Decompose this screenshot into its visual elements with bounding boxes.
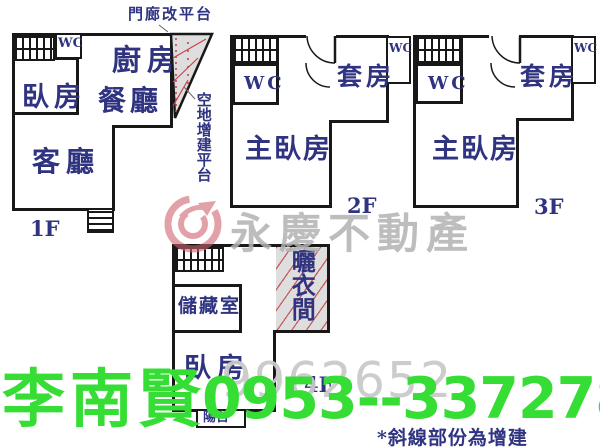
stairs-3f <box>415 37 463 63</box>
wall <box>329 120 389 123</box>
room-label-suite-3f: 套房 <box>520 64 578 90</box>
side-callout-line <box>184 87 195 99</box>
room-label-bedroom-1f: 臥房 <box>22 84 86 112</box>
porch-callout-line <box>159 25 168 32</box>
room-label-kitchen: 廚房 <box>112 45 182 75</box>
wall <box>112 125 173 128</box>
wall <box>519 35 574 38</box>
stairs-2f <box>232 37 279 63</box>
stairs-1f-down <box>87 208 114 233</box>
room-label-wc-1f: WC <box>58 37 83 51</box>
room-label-wc-right-3f: WC <box>574 42 597 55</box>
agent-phone: 0953--337278 <box>202 371 600 428</box>
room-label-suite-2f: 套房 <box>337 64 395 90</box>
room-label-wc-2f: WC <box>244 75 285 94</box>
door-swing-3f <box>491 36 520 87</box>
stairs-4f <box>174 247 224 272</box>
brand-watermark: 永慶不動產 <box>230 200 475 261</box>
floor-label-3f: 3F <box>534 194 564 219</box>
annotation-addition-side: 空地增建平台 <box>195 92 211 194</box>
annotation-porch: 門廊改平台 <box>128 7 213 23</box>
agent-contact: 李南賢 0953--337278 <box>2 368 600 431</box>
room-label-living: 客廳 <box>32 147 100 176</box>
room-label-dining: 餐廳 <box>98 86 162 115</box>
wall <box>336 35 389 38</box>
room-label-wc-3f: WC <box>428 75 469 94</box>
wall <box>112 125 115 211</box>
floor-label-1f: 1F <box>30 216 60 241</box>
stairs-1f <box>13 36 55 61</box>
brand-logo-icon <box>168 199 218 249</box>
room-label-master-2f: 主臥房 <box>245 136 332 164</box>
room-label-master-3f: 主臥房 <box>432 136 519 164</box>
wall <box>516 118 574 121</box>
floorplan-image: WC 臥房 廚房 餐廳 客廳 1F 門廊改平台 空地增建平台 WC WC 套房 … <box>0 0 600 448</box>
room-label-wc-right-2f: WC <box>389 42 412 55</box>
door-swing-2f <box>306 36 335 87</box>
agent-name: 李南賢 <box>2 368 206 431</box>
room-label-drying: 曬衣間 <box>289 249 314 331</box>
room-label-storage: 儲藏室 <box>178 297 241 317</box>
